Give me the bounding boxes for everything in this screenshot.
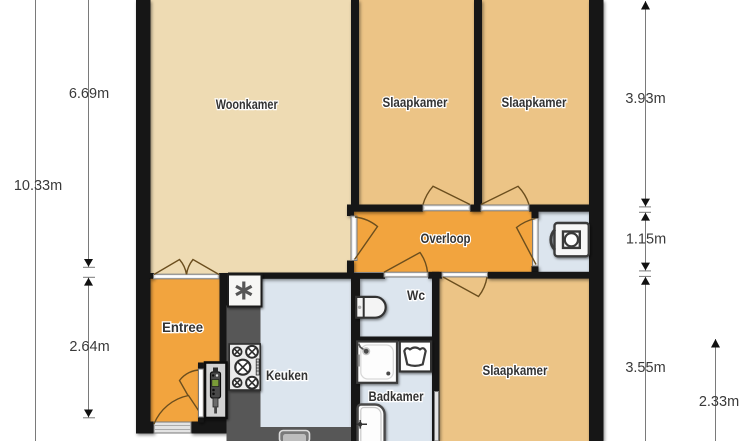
svg-text:Slaapkamer: Slaapkamer: [383, 95, 449, 110]
svg-text:Slaapkamer: Slaapkamer: [483, 363, 549, 378]
svg-text:Wc: Wc: [407, 288, 425, 303]
svg-text:6.69m: 6.69m: [69, 86, 109, 102]
svg-text:Woonkamer: Woonkamer: [216, 97, 279, 112]
svg-text:Overloop: Overloop: [421, 231, 471, 246]
svg-text:Entree: Entree: [162, 320, 203, 335]
svg-text:Badkamer: Badkamer: [369, 389, 425, 404]
svg-text:1.15m: 1.15m: [626, 232, 666, 248]
svg-text:3.93m: 3.93m: [625, 91, 665, 107]
svg-text:Keuken: Keuken: [266, 368, 308, 383]
svg-text:Slaapkamer: Slaapkamer: [502, 95, 568, 110]
svg-text:2.33m: 2.33m: [699, 394, 739, 410]
svg-text:10.33m: 10.33m: [14, 178, 62, 194]
svg-text:2.64m: 2.64m: [69, 339, 109, 355]
svg-text:3.55m: 3.55m: [625, 360, 665, 376]
